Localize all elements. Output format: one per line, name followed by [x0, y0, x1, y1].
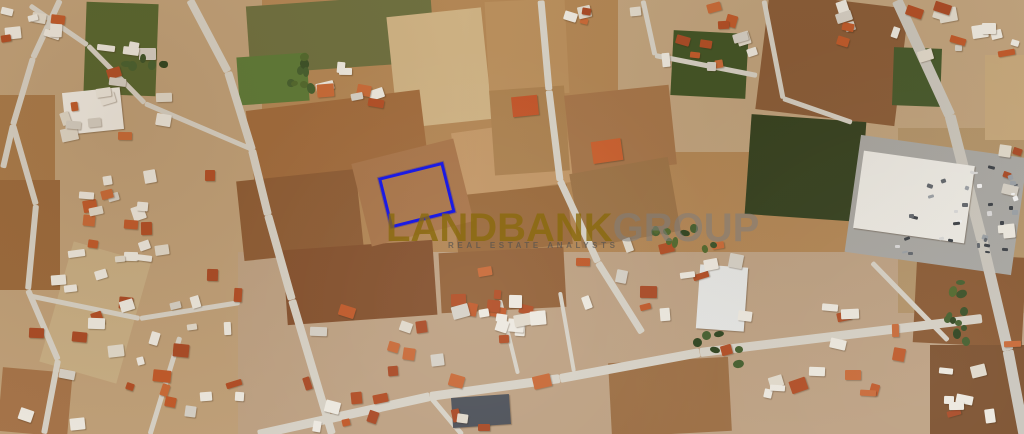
house	[703, 257, 719, 271]
house	[140, 222, 151, 235]
building	[511, 95, 539, 118]
car	[909, 214, 914, 218]
house	[50, 275, 66, 286]
house	[143, 169, 157, 184]
car	[1002, 248, 1008, 251]
house	[402, 348, 416, 362]
house	[509, 295, 523, 308]
house	[79, 192, 94, 200]
house	[172, 343, 189, 358]
house	[207, 269, 218, 282]
house	[233, 288, 242, 302]
car	[962, 203, 968, 208]
house	[660, 308, 671, 322]
building	[451, 394, 511, 428]
tree	[121, 60, 132, 67]
house	[982, 23, 996, 34]
house	[478, 424, 490, 431]
house	[310, 326, 328, 336]
house	[49, 24, 62, 38]
car	[908, 252, 913, 255]
house	[707, 62, 716, 72]
field	[236, 53, 309, 106]
house	[153, 369, 172, 382]
house	[1, 34, 12, 42]
tree	[956, 280, 965, 285]
house	[82, 214, 95, 227]
house	[156, 93, 172, 102]
car	[987, 211, 993, 216]
house	[955, 45, 962, 51]
house	[184, 406, 197, 419]
house	[388, 366, 399, 377]
house	[845, 370, 861, 380]
field	[485, 0, 570, 97]
house	[478, 308, 489, 317]
car	[895, 245, 900, 248]
car	[1011, 210, 1017, 215]
house	[892, 324, 900, 338]
house	[738, 310, 753, 322]
house	[640, 286, 657, 299]
house	[235, 391, 245, 401]
house	[457, 413, 469, 423]
house	[892, 347, 906, 362]
house	[984, 408, 995, 423]
house	[224, 321, 232, 334]
house	[530, 310, 547, 325]
satellite-map[interactable]: LANDBANKGROUP REAL ESTATE ANALYSTS	[0, 0, 1024, 434]
house	[661, 53, 670, 68]
car	[954, 210, 958, 213]
house	[28, 327, 43, 338]
field	[985, 55, 1024, 140]
house	[137, 201, 149, 211]
car	[1000, 221, 1004, 225]
house	[728, 252, 744, 268]
house	[205, 170, 215, 181]
house	[415, 320, 427, 333]
building	[853, 151, 975, 244]
house	[339, 68, 352, 75]
tree	[689, 224, 698, 234]
house	[689, 51, 700, 58]
tree	[679, 229, 690, 237]
car	[953, 221, 960, 224]
house	[155, 113, 172, 127]
car	[972, 171, 977, 173]
house	[351, 391, 363, 404]
house	[430, 353, 444, 367]
house	[575, 258, 589, 266]
house	[164, 396, 177, 408]
house	[622, 237, 634, 253]
house	[1002, 223, 1016, 238]
house	[124, 219, 138, 229]
house	[102, 175, 112, 185]
house	[187, 323, 198, 331]
house	[316, 83, 334, 98]
field	[745, 114, 867, 222]
house	[63, 284, 77, 292]
house	[809, 366, 825, 376]
house	[69, 418, 85, 431]
house	[717, 21, 729, 29]
field	[283, 240, 438, 325]
house	[199, 391, 212, 401]
house	[1004, 341, 1021, 348]
house	[998, 144, 1012, 158]
building	[591, 138, 624, 164]
house	[312, 421, 322, 433]
house	[88, 318, 106, 329]
house	[949, 402, 964, 410]
house	[118, 132, 132, 141]
house	[66, 120, 82, 129]
house	[841, 308, 859, 318]
house	[630, 6, 642, 16]
house	[498, 335, 508, 343]
house	[72, 331, 88, 342]
tree	[140, 54, 146, 64]
tree	[671, 237, 679, 249]
